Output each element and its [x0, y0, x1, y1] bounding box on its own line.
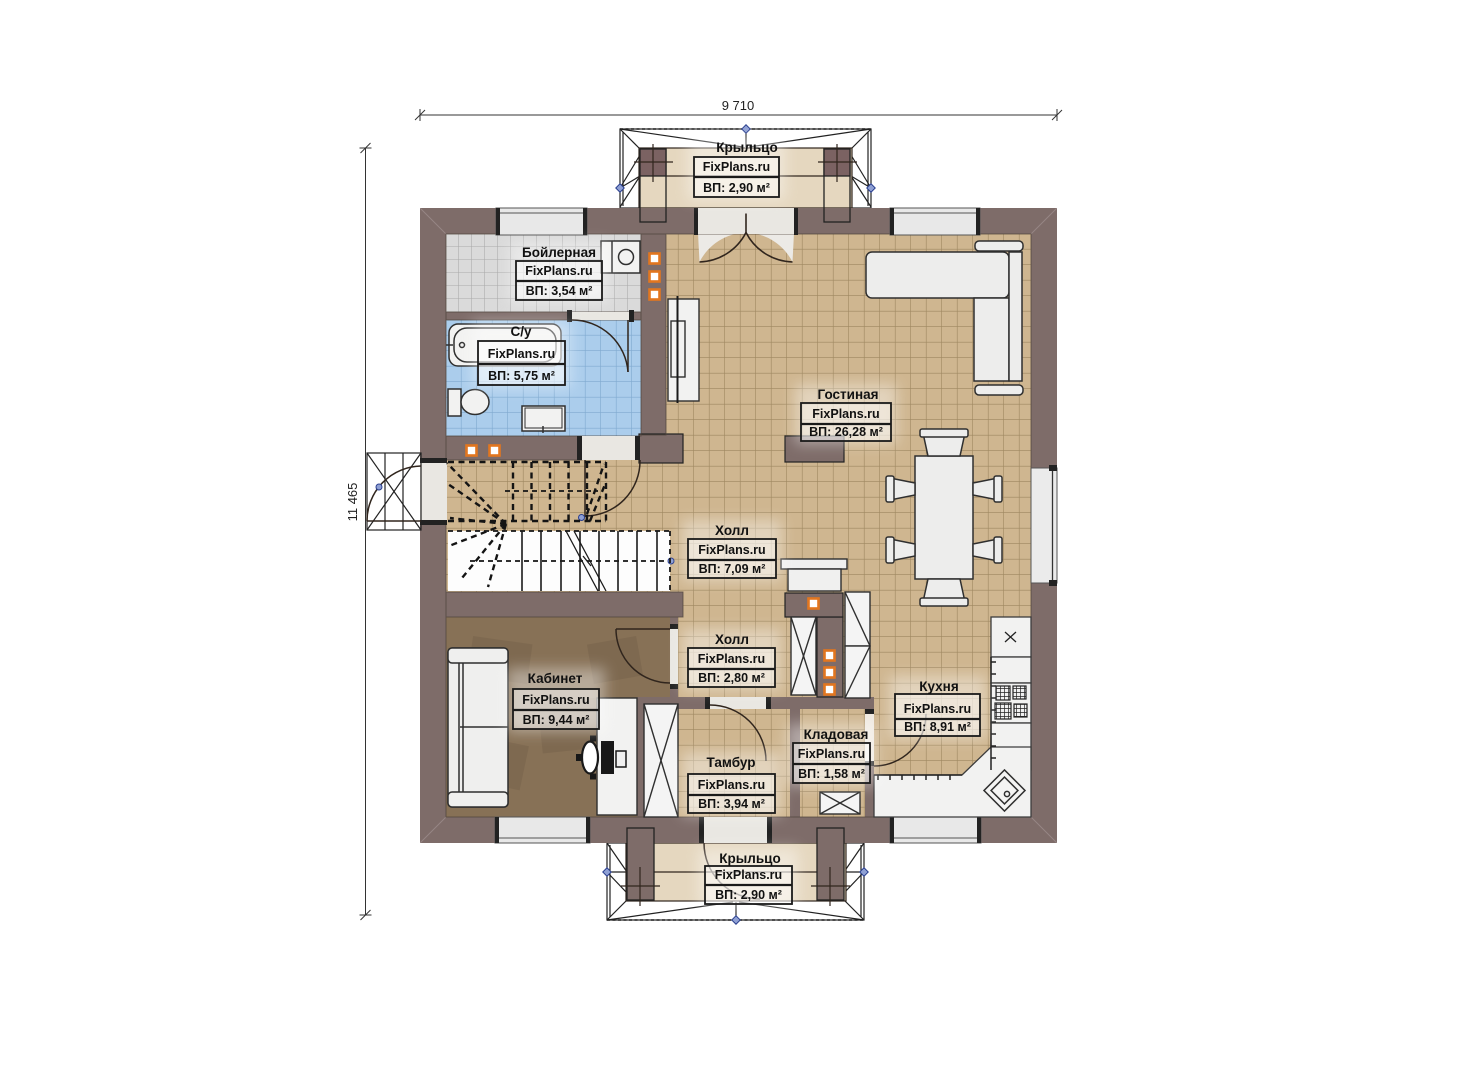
svg-text:ВП: 9,44 м²: ВП: 9,44 м²: [523, 713, 590, 727]
svg-text:ВП: 2,90 м²: ВП: 2,90 м²: [715, 888, 782, 902]
svg-text:FixPlans.ru: FixPlans.ru: [522, 693, 589, 707]
svg-text:ВП: 1,58 м²: ВП: 1,58 м²: [798, 767, 865, 781]
svg-text:ВП: 2,80 м²: ВП: 2,80 м²: [698, 671, 765, 685]
svg-text:FixPlans.ru: FixPlans.ru: [698, 543, 765, 557]
svg-text:Гостиная: Гостиная: [817, 387, 878, 402]
svg-text:Кабинет: Кабинет: [528, 671, 583, 686]
svg-text:FixPlans.ru: FixPlans.ru: [703, 160, 770, 174]
svg-text:FixPlans.ru: FixPlans.ru: [698, 778, 765, 792]
svg-text:Крыльцо: Крыльцо: [719, 851, 780, 866]
svg-text:ВП: 5,75 м²: ВП: 5,75 м²: [488, 369, 555, 383]
svg-text:FixPlans.ru: FixPlans.ru: [715, 868, 782, 882]
svg-text:ВП: 2,90 м²: ВП: 2,90 м²: [703, 181, 770, 195]
svg-text:Крыльцо: Крыльцо: [716, 140, 777, 155]
svg-text:ВП: 3,94 м²: ВП: 3,94 м²: [698, 797, 765, 811]
svg-text:Холл: Холл: [715, 523, 749, 538]
svg-text:Кухня: Кухня: [919, 679, 958, 694]
svg-text:FixPlans.ru: FixPlans.ru: [904, 702, 971, 716]
svg-text:ВП: 26,28 м²: ВП: 26,28 м²: [809, 425, 883, 439]
svg-text:Кладовая: Кладовая: [804, 727, 869, 742]
svg-text:Холл: Холл: [715, 632, 749, 647]
svg-text:9 710: 9 710: [722, 98, 755, 113]
svg-text:FixPlans.ru: FixPlans.ru: [488, 347, 555, 361]
svg-text:ВП: 7,09 м²: ВП: 7,09 м²: [699, 562, 766, 576]
svg-text:FixPlans.ru: FixPlans.ru: [525, 264, 592, 278]
svg-text:ВП: 3,54 м²: ВП: 3,54 м²: [526, 284, 593, 298]
svg-text:ВП: 8,91 м²: ВП: 8,91 м²: [904, 720, 971, 734]
svg-text:11 465: 11 465: [345, 483, 360, 522]
svg-text:Тамбур: Тамбур: [707, 755, 756, 770]
svg-text:С/у: С/у: [510, 324, 532, 339]
svg-text:Бойлерная: Бойлерная: [522, 245, 596, 260]
svg-text:FixPlans.ru: FixPlans.ru: [812, 407, 879, 421]
svg-text:FixPlans.ru: FixPlans.ru: [798, 747, 865, 761]
svg-text:FixPlans.ru: FixPlans.ru: [698, 652, 765, 666]
